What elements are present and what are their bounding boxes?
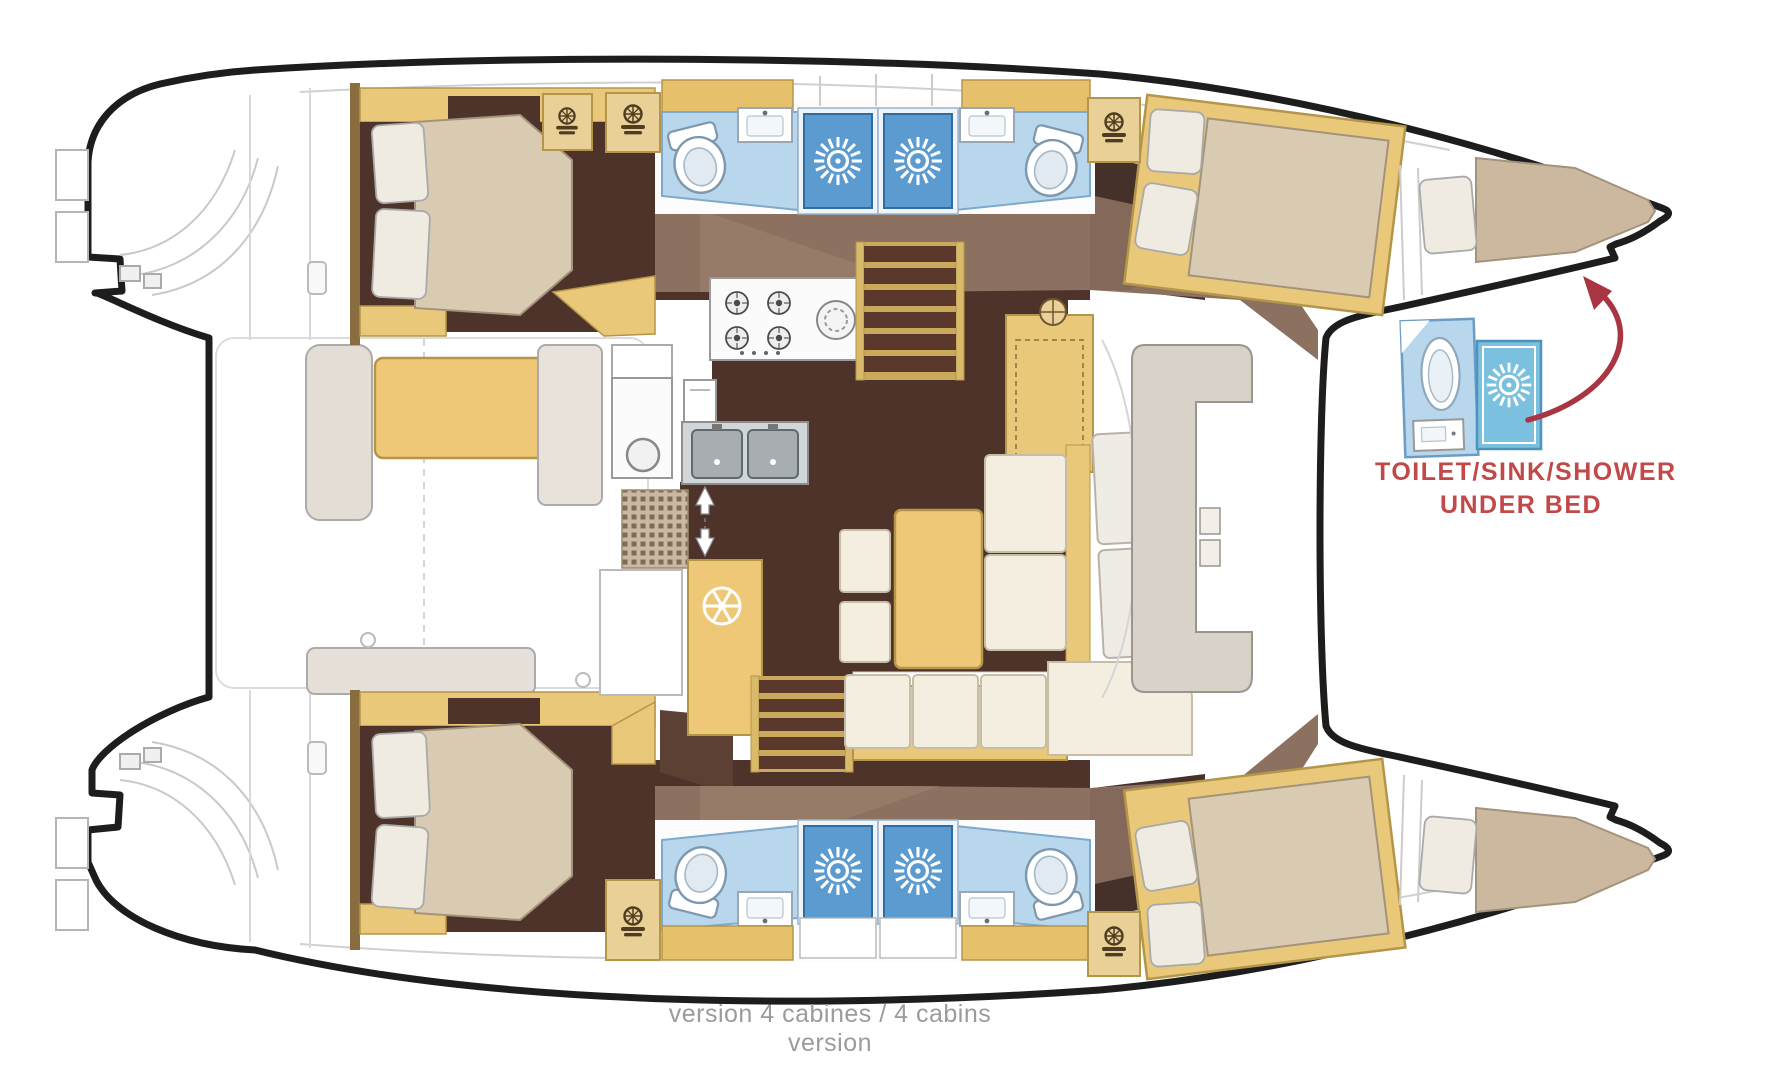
inset-diagram <box>1401 319 1541 457</box>
pillow <box>372 732 430 819</box>
sink <box>960 108 1014 142</box>
pillow <box>1419 176 1477 254</box>
version-caption: version 4 cabines / 4 cabins version <box>630 1000 1030 1058</box>
bathrooms-bottom <box>606 820 1095 962</box>
hot-plate <box>817 301 855 339</box>
pillow <box>1147 902 1205 968</box>
callout-line-1: TOILET/SINK/SHOWER <box>1375 456 1667 489</box>
pillow <box>371 824 429 909</box>
cockpit-seat-panel <box>538 345 602 505</box>
callout-line-2: UNDER BED <box>1375 489 1667 522</box>
pillow <box>1419 816 1477 894</box>
appliance-top <box>612 345 672 378</box>
shower-head-icon <box>1487 363 1532 408</box>
lower-cabinet <box>600 570 682 695</box>
double-bed <box>1189 777 1389 956</box>
cockpit-table <box>375 358 558 458</box>
deck-hatch <box>308 262 326 294</box>
shower-stall <box>878 108 958 214</box>
shower-door <box>880 918 956 958</box>
salon-table <box>895 510 982 668</box>
bow-mattress <box>1476 158 1655 262</box>
double-bed <box>1189 118 1389 297</box>
shower-head-icon <box>894 137 942 185</box>
double-bed <box>415 724 572 920</box>
boarding-step-bottom <box>120 754 140 769</box>
floorplan-canvas: TOILET/SINK/SHOWER UNDER BED version 4 c… <box>0 0 1783 1080</box>
shower-head-icon <box>814 137 862 185</box>
dishwasher <box>684 380 716 422</box>
pillow <box>371 122 428 203</box>
shower-head-icon <box>894 847 942 895</box>
stairs-top <box>856 242 964 380</box>
pillow <box>372 209 431 300</box>
forward-cabin-top <box>1088 95 1655 315</box>
sink <box>738 892 792 926</box>
callout-label: TOILET/SINK/SHOWER UNDER BED <box>1375 456 1667 522</box>
shower-door <box>800 918 876 958</box>
stairs-bottom <box>751 676 853 772</box>
catamaran-floorplan <box>0 0 1783 1080</box>
shower-stall <box>798 108 878 214</box>
sink <box>960 892 1014 926</box>
shower-stall <box>878 820 958 924</box>
boarding-step-top <box>120 266 140 281</box>
grid-mat <box>622 490 688 568</box>
cockpit-bench-aft <box>307 648 535 694</box>
swim-ladders <box>56 150 88 930</box>
double-sink <box>682 422 808 484</box>
pillow <box>1134 182 1199 256</box>
shower-stall <box>798 820 878 924</box>
pillow <box>1134 820 1198 892</box>
shower-head-icon <box>814 847 862 895</box>
pillow <box>1147 109 1205 175</box>
sink <box>738 108 792 142</box>
cockpit-bench-port <box>306 345 372 520</box>
washing-machine <box>612 378 672 478</box>
inset-shower <box>1477 341 1541 449</box>
